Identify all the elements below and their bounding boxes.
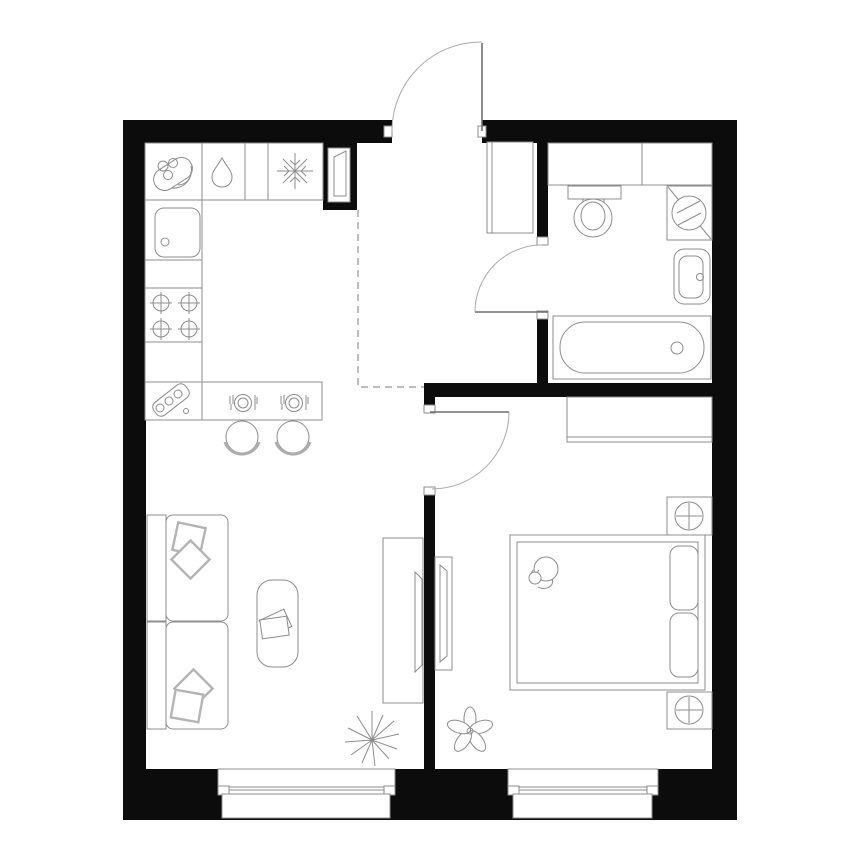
kitchen-sink (155, 208, 200, 257)
window-bedroom (508, 769, 658, 818)
hallway-closet (487, 142, 533, 233)
duct-niche (328, 148, 350, 202)
tv-living-icon (415, 572, 422, 672)
wall-right (712, 120, 737, 820)
wall-top-right (482, 120, 737, 143)
wall-top-left (123, 120, 392, 143)
washbasin (674, 249, 710, 304)
tv-bedroom-icon (435, 557, 452, 670)
plan-host (0, 0, 864, 864)
wall-bottom-center (395, 769, 508, 820)
wall-bottom-left (123, 769, 218, 820)
wall-partition (424, 487, 435, 769)
wall-bathroom-upper (537, 143, 548, 245)
wall-bottom-right (658, 769, 737, 820)
floor-plan-page (0, 0, 864, 864)
wall-left (123, 120, 146, 820)
bedroom-wardrobe (567, 397, 712, 442)
bed (510, 535, 705, 690)
bathtub (553, 316, 711, 379)
bathroom-shelf (548, 143, 712, 185)
nightstand-top (667, 497, 712, 535)
nightstand-bottom (667, 692, 712, 729)
wall-bedroom-top (424, 383, 737, 397)
dining-chair-1 (225, 421, 259, 454)
washing-machine (667, 186, 712, 240)
window-living (218, 769, 395, 818)
wall-bathroom-lower (537, 311, 548, 383)
dining-chair-2 (276, 421, 310, 454)
floor-plan (0, 0, 864, 864)
